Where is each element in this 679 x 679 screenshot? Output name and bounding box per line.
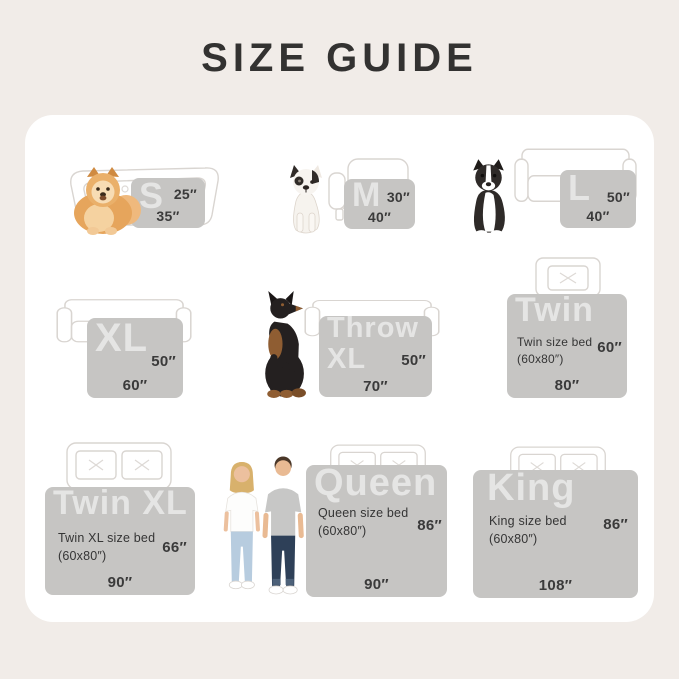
french-bulldog-icon: [284, 164, 328, 236]
border-collie-icon: [462, 158, 515, 238]
bottom-dimension-twin-xl: 90″: [108, 574, 133, 591]
bottom-dimension-throw-xl: 70″: [363, 378, 388, 395]
blanket-size-queen: Queen Queen size bed(60x80″) 86″ 90″: [306, 465, 447, 597]
doberman-dog-icon: [255, 291, 308, 399]
side-dimension-throw-xl: 50″: [401, 352, 426, 369]
blanket-size-twin: Twin Twin size bed(60x80″) 60″ 80″: [507, 294, 627, 398]
bed-description-king: King size bed(60x80″): [489, 512, 567, 548]
bed-description-queen: Queen size bed(60x80″): [318, 504, 408, 540]
size-label-queen: Queen: [314, 462, 437, 506]
size-label-l: L: [568, 167, 591, 208]
side-dimension-queen: 86″: [417, 517, 442, 534]
size-label-xl: XL: [95, 315, 148, 361]
size-label-twin: Twin: [515, 291, 594, 330]
bottom-dimension-m: 40″: [368, 209, 391, 225]
blanket-size-l: L 50″ 40″: [560, 170, 636, 228]
blanket-size-m: M 30″ 40″: [344, 179, 415, 229]
blanket-size-throw-xl: Throw XL 50″ 70″: [319, 316, 432, 397]
bottom-dimension-king: 108″: [539, 577, 572, 594]
side-dimension-twin-xl: 66″: [162, 539, 187, 556]
side-dimension-l: 50″: [607, 189, 630, 205]
bottom-dimension-s: 35″: [156, 208, 179, 224]
man-and-woman-couple-icon: [218, 453, 310, 599]
side-dimension-xl: 50″: [151, 353, 176, 370]
size-guide-infographic: SIZE GUIDE S 25″ 35″: [0, 0, 679, 679]
bottom-dimension-queen: 90″: [364, 576, 389, 593]
bed-description-twin: Twin size bed(60x80″): [517, 334, 592, 369]
side-dimension-m: 30″: [387, 189, 410, 205]
bottom-dimension-xl: 60″: [123, 377, 148, 394]
side-dimension-king: 86″: [603, 516, 628, 533]
page-title: SIZE GUIDE: [0, 36, 679, 81]
pomeranian-dog-icon: [60, 166, 150, 236]
blanket-size-xl: XL 50″ 60″: [87, 318, 183, 398]
bed-description-twin-xl: Twin XL size bed(60x80″): [58, 529, 155, 565]
side-dimension-twin: 60″: [597, 339, 622, 356]
bottom-dimension-l: 40″: [586, 208, 609, 224]
bottom-dimension-twin: 80″: [555, 377, 580, 394]
size-label-king: King: [487, 467, 575, 511]
side-dimension-s: 25″: [174, 186, 197, 202]
blanket-size-king: King King size bed(60x80″) 86″ 108″: [473, 470, 638, 598]
blanket-size-twin-xl: Twin XL Twin XL size bed(60x80″) 66″ 90″: [45, 487, 195, 595]
size-label-twin-xl: Twin XL: [53, 484, 188, 523]
